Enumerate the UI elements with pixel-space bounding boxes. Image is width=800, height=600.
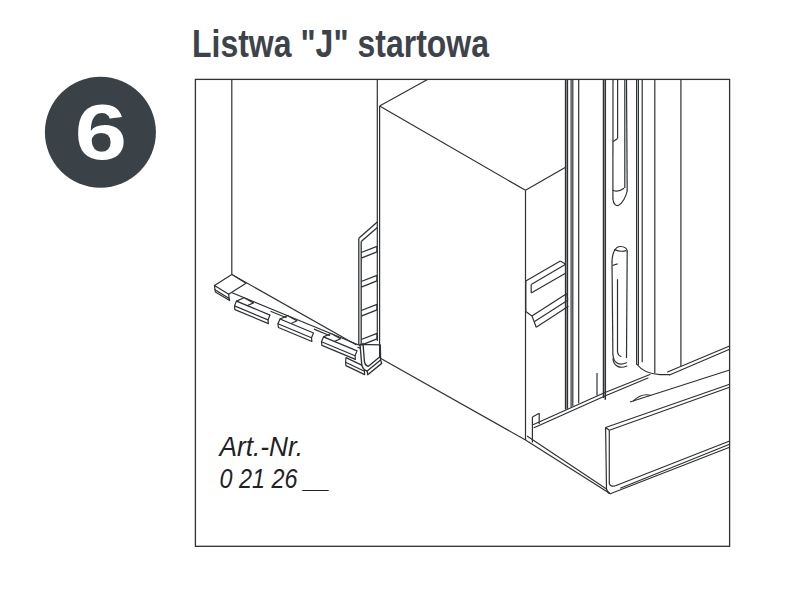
- svg-text:Art.-Nr.: Art.-Nr.: [218, 431, 303, 462]
- svg-text:6: 6: [75, 89, 127, 175]
- svg-text:Listwa "J" startowa: Listwa "J" startowa: [192, 21, 490, 65]
- svg-text:0 21 26 __: 0 21 26 __: [220, 463, 331, 494]
